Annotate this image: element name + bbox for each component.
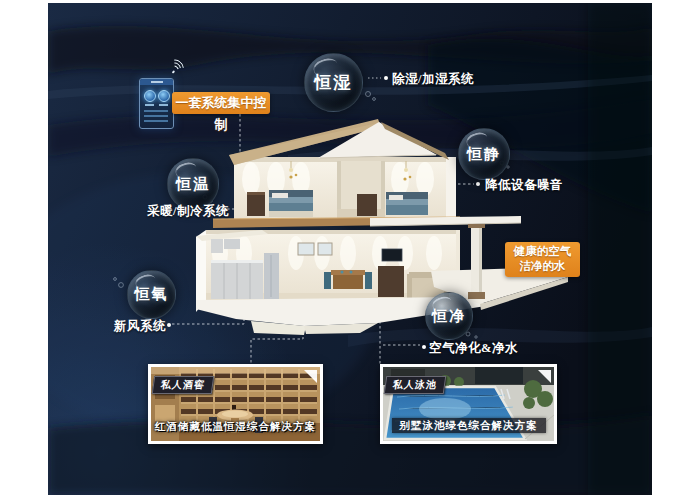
bubble-label: 恒净 — [432, 307, 466, 326]
control-dial-icon — [144, 90, 156, 102]
healthy-air-water-badge: 健康的空气 洁净的水 — [505, 242, 580, 277]
pool-caption: 别墅泳池绿色综合解决方案 — [383, 419, 554, 433]
bubble-constant-oxygen: 恒氧 — [127, 270, 176, 319]
pool-caption-text: 别墅泳池绿色综合解决方案 — [392, 418, 546, 433]
label-hvac-system: 采暖/制冷系统 — [147, 203, 229, 220]
pool-tag: 私人泳池 — [384, 376, 447, 394]
control-panel-screen-header — [140, 79, 173, 85]
bubble-constant-purity: 恒净 — [425, 292, 473, 340]
smart-control-panel — [139, 78, 174, 129]
bubble-label: 恒静 — [467, 145, 501, 164]
label-air-water-purification: 空气净化&净水 — [429, 340, 518, 357]
wine-cellar-tag: 私人酒窖 — [152, 376, 215, 394]
central-control-badge: 一套系统集中控制 — [172, 92, 270, 114]
label-fresh-air-system: 新风系统 — [114, 318, 166, 335]
bubble-label: 恒氧 — [135, 285, 169, 304]
wine-cellar-card: 私人酒窖 红酒储藏低温恒湿综合解决方案 — [148, 364, 323, 444]
clean-water-line: 洁净的水 — [505, 259, 580, 274]
bubble-label: 恒湿 — [315, 71, 353, 94]
infographic-page: 一套系统集中控制 健康的空气 洁净的水 恒湿 恒静 恒温 恒氧 恒净 除湿/加湿… — [0, 0, 700, 497]
healthy-air-line: 健康的空气 — [505, 244, 580, 259]
bubble-constant-humidity: 恒湿 — [304, 53, 363, 112]
wine-cellar-caption: 红酒储藏低温恒湿综合解决方案 — [151, 420, 320, 434]
corner-fold-icon — [304, 370, 317, 383]
bubble-label: 恒温 — [176, 175, 210, 194]
label-dehumidify-system: 除湿/加湿系统 — [392, 71, 474, 88]
infographic-canvas: 一套系统集中控制 健康的空气 洁净的水 恒湿 恒静 恒温 恒氧 恒净 除湿/加湿… — [48, 3, 652, 495]
label-noise-reduction: 降低设备噪音 — [485, 177, 563, 194]
corner-fold-icon — [538, 370, 551, 383]
bubble-constant-quiet: 恒静 — [458, 128, 510, 180]
control-dial-icon — [158, 90, 170, 102]
pool-card: 私人泳池 别墅泳池绿色综合解决方案 — [380, 364, 557, 444]
